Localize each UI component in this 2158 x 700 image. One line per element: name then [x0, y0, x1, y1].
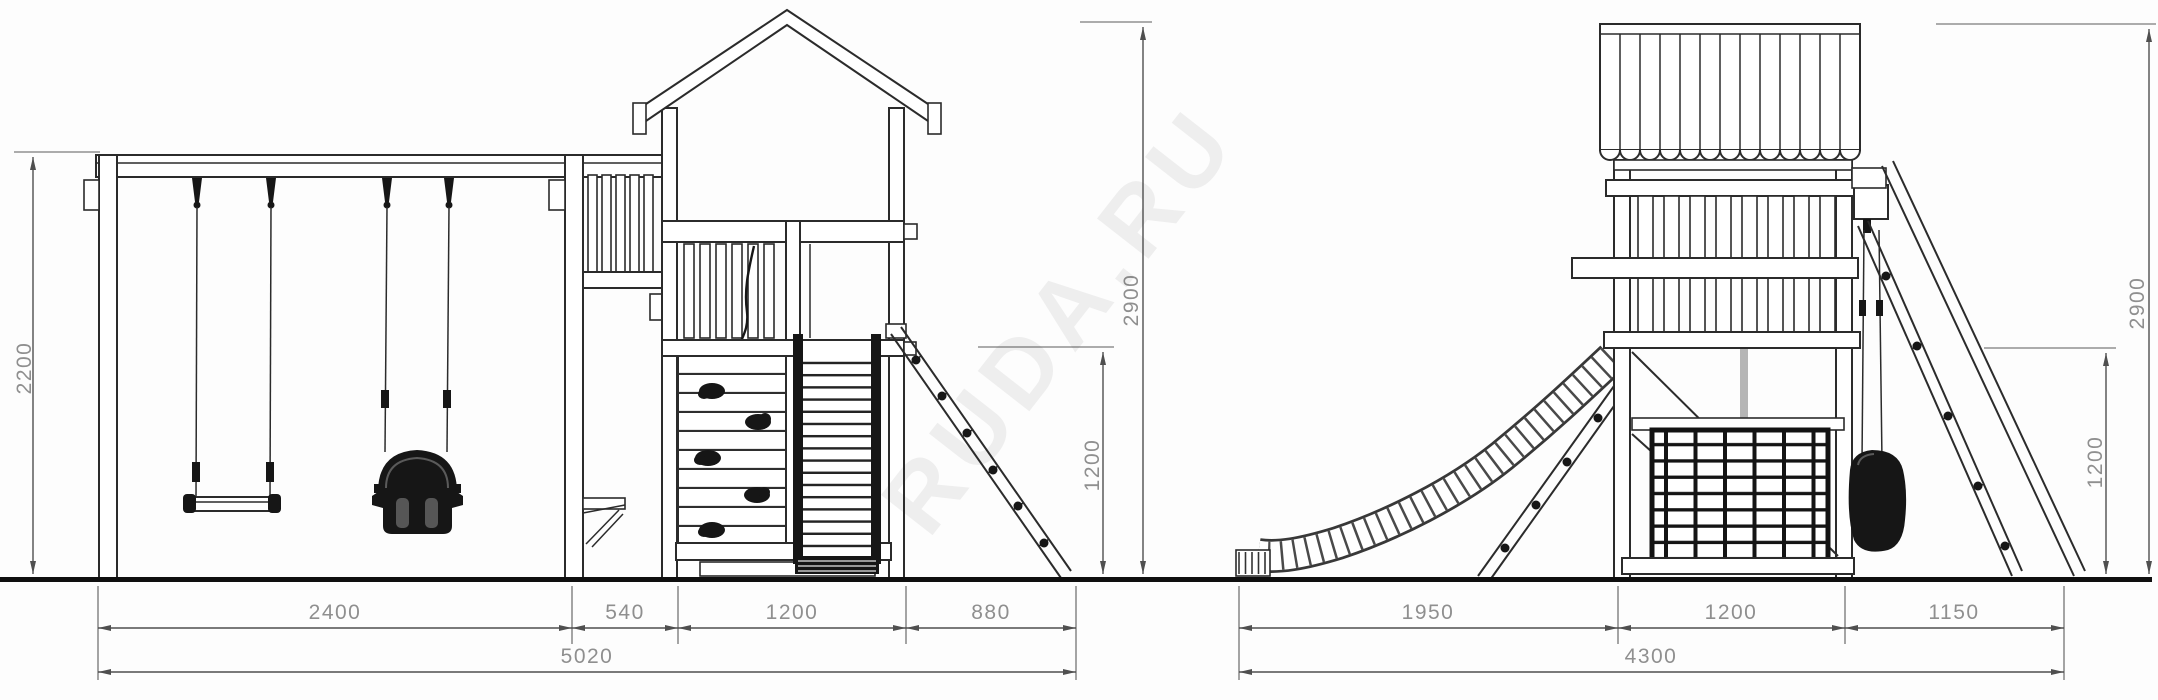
gable-roof	[640, 10, 934, 121]
dim-side-slide-width: 1950	[1402, 601, 1455, 624]
swing-post-right	[565, 155, 583, 580]
dim-front-swing-width: 2400	[309, 601, 362, 624]
technical-drawing-page: 2400 540 1200 880 5020 2200 1200 2900 19…	[0, 0, 2158, 700]
side-deck-band	[1604, 332, 1860, 348]
dim-side-total-width: 4300	[1625, 645, 1678, 668]
dim-front-deck-height: 1200	[1081, 439, 1104, 492]
climbing-net	[1652, 430, 1828, 560]
dim-side-frame-width: 1150	[1928, 601, 1979, 624]
bench-bracket	[583, 498, 625, 547]
slat-window	[684, 244, 774, 338]
side-tower	[1572, 24, 1860, 580]
ground-line	[0, 577, 2152, 582]
canopy-roof	[1600, 24, 1860, 160]
dim-side-tower-width: 1200	[1705, 601, 1758, 624]
walkway-balustrade	[583, 175, 667, 320]
side-post-left	[1614, 160, 1630, 580]
rope-climber	[793, 334, 881, 574]
bucket-swing-seat	[372, 450, 463, 534]
dim-front-swing-height: 2200	[13, 342, 36, 395]
flat-swing-seat	[183, 494, 281, 513]
dim-front-total-width: 5020	[561, 645, 614, 668]
playground-elevation-drawing: 2400 540 1200 880 5020 2200 1200 2900 19…	[0, 0, 2158, 700]
climbing-wall	[678, 356, 798, 544]
swing-chains	[192, 178, 454, 497]
swing-beam-end	[1854, 185, 1888, 219]
dim-front-tower-width: 1200	[766, 601, 819, 624]
dim-front-ladder-width: 880	[971, 601, 1011, 624]
dim-side-overall-height: 2900	[2126, 277, 2149, 330]
dim-side-deck-height: 1200	[2084, 436, 2107, 489]
swing-frame	[84, 155, 667, 580]
side-base-board	[1622, 558, 1854, 574]
side-elevation-view	[1236, 24, 2085, 580]
dim-front-gap-width: 540	[605, 601, 645, 624]
swing-post-left	[99, 155, 117, 580]
watermark-text: RUDA.RU	[862, 88, 1258, 554]
bucket-seat-side	[1849, 450, 1906, 552]
